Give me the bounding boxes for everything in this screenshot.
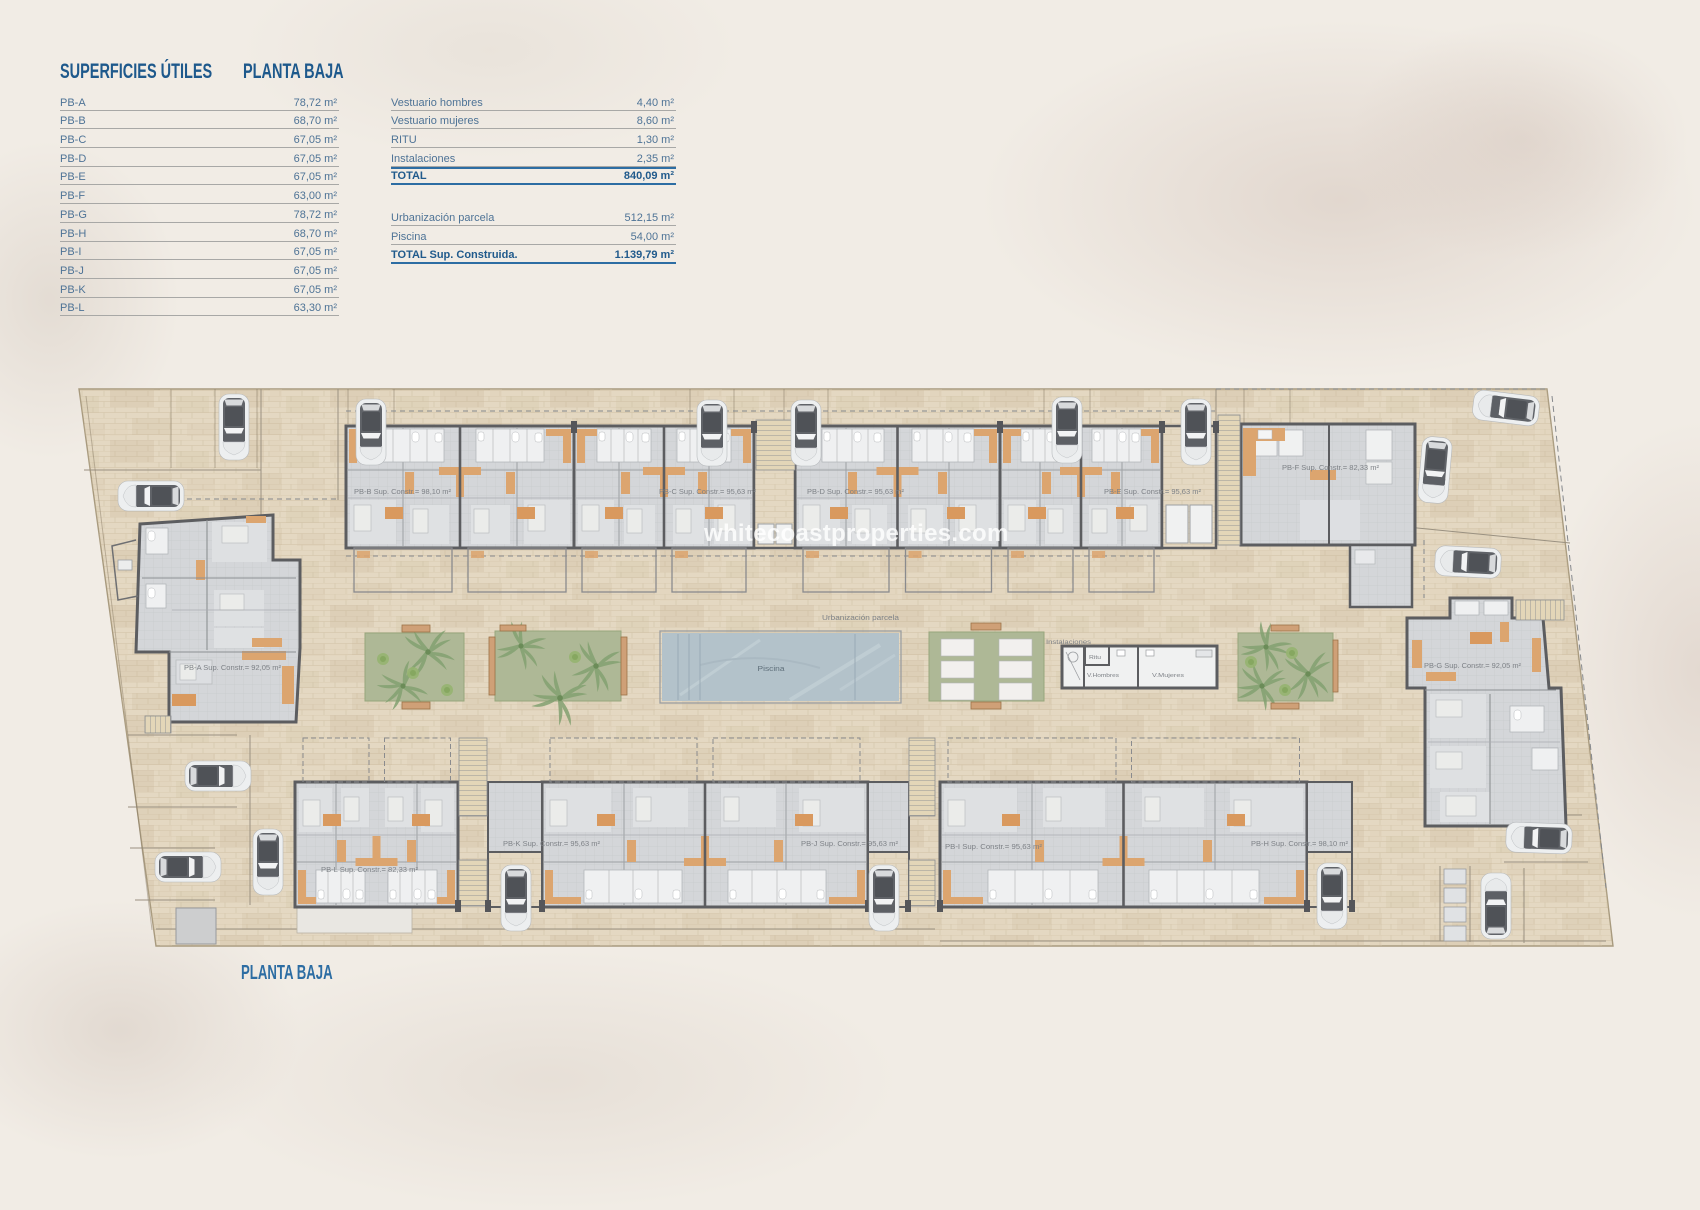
svg-text:PB-E Sup. Constr.= 95,63 m²: PB-E Sup. Constr.= 95,63 m² [1104, 487, 1202, 496]
svg-text:PB-K Sup. Constr.= 95,63 m²: PB-K Sup. Constr.= 95,63 m² [503, 839, 601, 848]
svg-text:V.Hombres: V.Hombres [1087, 673, 1119, 679]
svg-text:V.Mujeres: V.Mujeres [1152, 673, 1184, 679]
svg-text:Ritu: Ritu [1089, 655, 1101, 661]
svg-text:PB-C Sup. Constr.= 95,63 m²: PB-C Sup. Constr.= 95,63 m² [659, 487, 757, 496]
svg-text:PB-A Sup. Constr.= 92,05 m²: PB-A Sup. Constr.= 92,05 m² [184, 663, 282, 672]
svg-text:PB-G Sup. Constr.= 92,05 m²: PB-G Sup. Constr.= 92,05 m² [1424, 661, 1522, 670]
svg-text:Urbanización parcela: Urbanización parcela [822, 615, 899, 622]
svg-text:PB-I Sup. Constr.= 95,63 m²: PB-I Sup. Constr.= 95,63 m² [945, 842, 1043, 851]
svg-text:PB-L Sup. Constr.= 82,33 m²: PB-L Sup. Constr.= 82,33 m² [321, 865, 419, 874]
svg-text:Instalaciones: Instalaciones [1046, 639, 1092, 646]
svg-text:Piscina: Piscina [758, 666, 785, 673]
svg-text:PB-J Sup. Constr.= 95,63 m²: PB-J Sup. Constr.= 95,63 m² [801, 839, 899, 848]
svg-text:PB-F Sup. Constr.= 82,33 m²: PB-F Sup. Constr.= 82,33 m² [1282, 463, 1380, 472]
svg-text:PB-B Sup. Constr.= 98,10 m²: PB-B Sup. Constr.= 98,10 m² [354, 487, 452, 496]
svg-text:PB-D Sup. Constr.= 95,63 m²: PB-D Sup. Constr.= 95,63 m² [807, 487, 905, 496]
svg-text:PB-H Sup. Constr.= 98,10 m²: PB-H Sup. Constr.= 98,10 m² [1251, 839, 1349, 848]
